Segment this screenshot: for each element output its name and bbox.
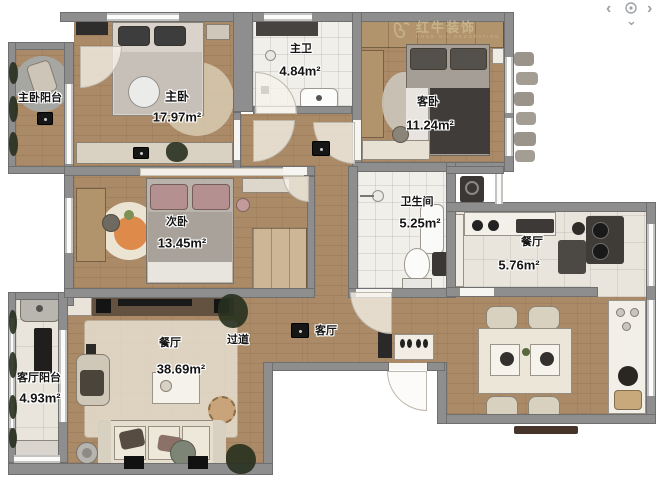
desk-device (133, 147, 149, 159)
second-wardrobe (252, 228, 307, 290)
armchair-throw (80, 370, 104, 396)
kettle (618, 366, 638, 386)
hanging-clothes (514, 132, 536, 146)
tv-screen (118, 299, 192, 306)
floorplan-canvas: 主卧阳台 主卧 17.97m² 主卫 4.84m² 客卧 11.24m² 次卧 … (0, 0, 656, 492)
wall (233, 12, 253, 112)
hanging-clothes (514, 92, 534, 106)
wall (427, 362, 445, 371)
corridor-mid-floor (315, 166, 348, 296)
counter-device (516, 219, 554, 233)
area-master-bedroom: 17.97m² (153, 110, 201, 125)
master-dresser (76, 22, 108, 35)
shoe (400, 339, 405, 348)
edge-plants (9, 132, 18, 156)
brand-watermark: 红牛装饰 HONG NIU DECORATION (392, 20, 500, 40)
cook-pot (592, 243, 609, 260)
entry-door-arc (387, 371, 427, 411)
cutting-board (614, 390, 642, 410)
window (107, 13, 179, 21)
area-bathroom: 5.25m² (399, 216, 440, 231)
living-plant-top (218, 294, 248, 328)
watermark-sub-text: HONG NIU DECORATION (416, 34, 500, 39)
label-master-bath: 主卫 (290, 40, 312, 56)
window (647, 224, 655, 286)
speaker (96, 299, 111, 313)
window (505, 57, 513, 113)
door-opening (283, 167, 307, 175)
edge-plants (9, 62, 18, 84)
second-chair (102, 214, 120, 232)
wall (446, 166, 504, 174)
counter-appliance (472, 220, 483, 231)
guest-desk (362, 140, 430, 160)
shoe (416, 339, 421, 348)
floor-device (291, 323, 309, 338)
window (495, 174, 503, 204)
master-desk (76, 142, 233, 164)
bull-logo-icon (392, 20, 412, 40)
entry-bench (378, 332, 392, 358)
master-pillow-left (118, 26, 150, 46)
wall (263, 362, 273, 475)
speaker (188, 456, 208, 469)
second-bed-foot (148, 262, 232, 282)
label-master-bedroom: 主卧 (165, 88, 189, 105)
counter-appliance (488, 220, 499, 231)
window (65, 84, 73, 164)
balcony-side-table (37, 112, 53, 125)
shower-stem (360, 195, 374, 197)
label-master-balcony: 主卧阳台 (18, 89, 62, 105)
guest-pillow-right (450, 48, 487, 70)
wall (437, 362, 447, 424)
area-master-bath: 4.84m² (279, 64, 320, 79)
wall (446, 162, 456, 298)
sink-faucet (316, 95, 322, 101)
pan-right-button[interactable]: › (647, 1, 652, 17)
window (505, 118, 513, 156)
jar (616, 308, 625, 317)
edge-plants (9, 428, 17, 448)
sofa-arm (98, 420, 111, 468)
dining-chair (528, 306, 560, 330)
door-opening (234, 120, 240, 160)
pink-stool (236, 198, 250, 212)
label-dining-small: 餐厅 (521, 233, 543, 249)
fridge (558, 240, 586, 274)
area-dining-small: 5.76m² (498, 258, 539, 273)
label-second-bedroom: 次卧 (166, 213, 188, 229)
label-living-room: 客厅 (315, 322, 337, 338)
washer-door (465, 181, 479, 195)
area-dining-main: 38.69m² (157, 362, 205, 377)
shoe (407, 339, 412, 348)
master-blanket (114, 52, 202, 114)
window (14, 455, 60, 463)
hanging-clothes (516, 72, 538, 85)
edge-plants (9, 310, 17, 334)
label-bathroom: 卫生间 (401, 193, 434, 209)
pan-down-button[interactable]: ⌄ (626, 14, 637, 27)
area-living-balcony: 4.93m² (19, 391, 60, 406)
master-pillow-right (154, 26, 186, 46)
master-round-seat (128, 76, 160, 108)
speaker (124, 456, 144, 469)
window (264, 13, 312, 21)
jar (622, 322, 631, 331)
label-guest-bedroom: 客卧 (417, 93, 439, 109)
edge-plants (9, 96, 18, 122)
hanging-clothes (514, 52, 534, 66)
doormat (514, 426, 578, 434)
label-living-balcony: 客厅阳台 (17, 369, 61, 385)
jar (630, 308, 639, 317)
second-pillow-left (150, 184, 188, 210)
window (65, 198, 73, 253)
window (647, 300, 655, 396)
second-pillow-right (192, 184, 230, 210)
wall (437, 414, 656, 424)
wall (348, 166, 358, 298)
floor-device (312, 141, 330, 156)
entry-door-opening (389, 363, 427, 370)
door-opening (460, 288, 494, 296)
pan-left-button[interactable]: ‹ (606, 1, 611, 17)
pot (572, 222, 585, 235)
hanging-clothes (516, 112, 536, 125)
wall (446, 202, 656, 212)
living-plant-bottom (226, 444, 256, 474)
water-heater (34, 328, 52, 374)
wall (263, 362, 389, 371)
cook-pot (592, 222, 609, 239)
watermark-brand-text: 红牛装饰 (416, 22, 500, 34)
area-second-bedroom: 13.45m² (158, 236, 206, 251)
table-plant (522, 348, 530, 356)
bowl (540, 352, 554, 366)
sofa-arm (213, 420, 226, 468)
master-nightstand (206, 24, 230, 40)
vanity-counter (256, 21, 318, 36)
edge-plants (9, 395, 17, 419)
area-guest-bedroom: 11.24m² (406, 118, 454, 133)
toilet-bowl (404, 248, 430, 280)
label-hallway: 过道 (227, 331, 249, 347)
hanging-clothes (515, 150, 535, 162)
second-shelf (140, 168, 304, 176)
label-dining-main: 餐厅 (159, 334, 181, 350)
sink-drain (36, 305, 43, 312)
shower-head (265, 50, 276, 61)
shoe (423, 339, 428, 348)
vacuum-center (82, 448, 92, 458)
wall (8, 42, 70, 50)
wall (64, 288, 315, 298)
guest-nightstand (492, 48, 504, 64)
master-plant (166, 142, 188, 162)
rug-dot (124, 210, 134, 220)
edge-plants (9, 352, 17, 378)
bowl (500, 352, 514, 366)
coffee-tray (160, 380, 172, 392)
dining-chair (486, 306, 518, 330)
coffee-table (152, 372, 200, 404)
guest-pillow-left (410, 48, 447, 70)
